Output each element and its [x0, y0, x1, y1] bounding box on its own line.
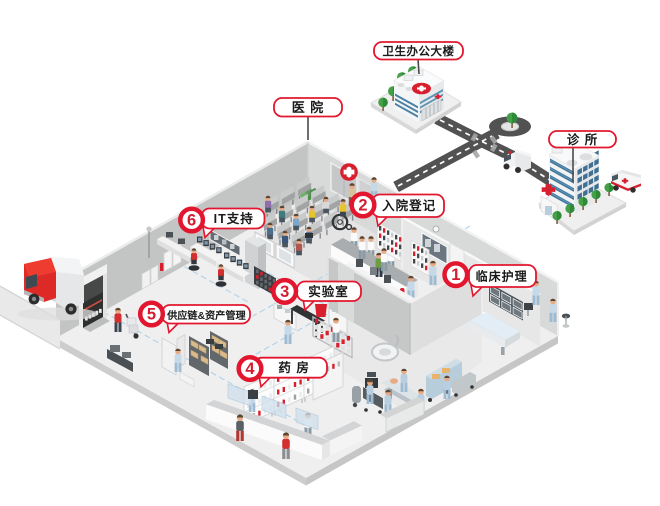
svg-text:2: 2 [358, 197, 367, 215]
svg-text:IT支持: IT支持 [214, 211, 254, 226]
svg-text:4: 4 [245, 360, 255, 378]
svg-text:入院登记: 入院登记 [382, 198, 436, 213]
svg-text:诊 所: 诊 所 [567, 132, 598, 147]
svg-text:3: 3 [280, 283, 289, 301]
svg-text:卫生办公大楼: 卫生办公大楼 [383, 44, 455, 58]
svg-text:医 院: 医 院 [292, 100, 325, 115]
svg-text:药 房: 药 房 [278, 360, 309, 375]
svg-text:实验室: 实验室 [308, 284, 349, 299]
svg-text:5: 5 [147, 306, 156, 324]
svg-text:供应链&资产管理: 供应链&资产管理 [166, 309, 246, 322]
svg-text:6: 6 [187, 212, 196, 230]
svg-text:1: 1 [451, 266, 460, 284]
svg-text:临床护理: 临床护理 [476, 269, 528, 284]
